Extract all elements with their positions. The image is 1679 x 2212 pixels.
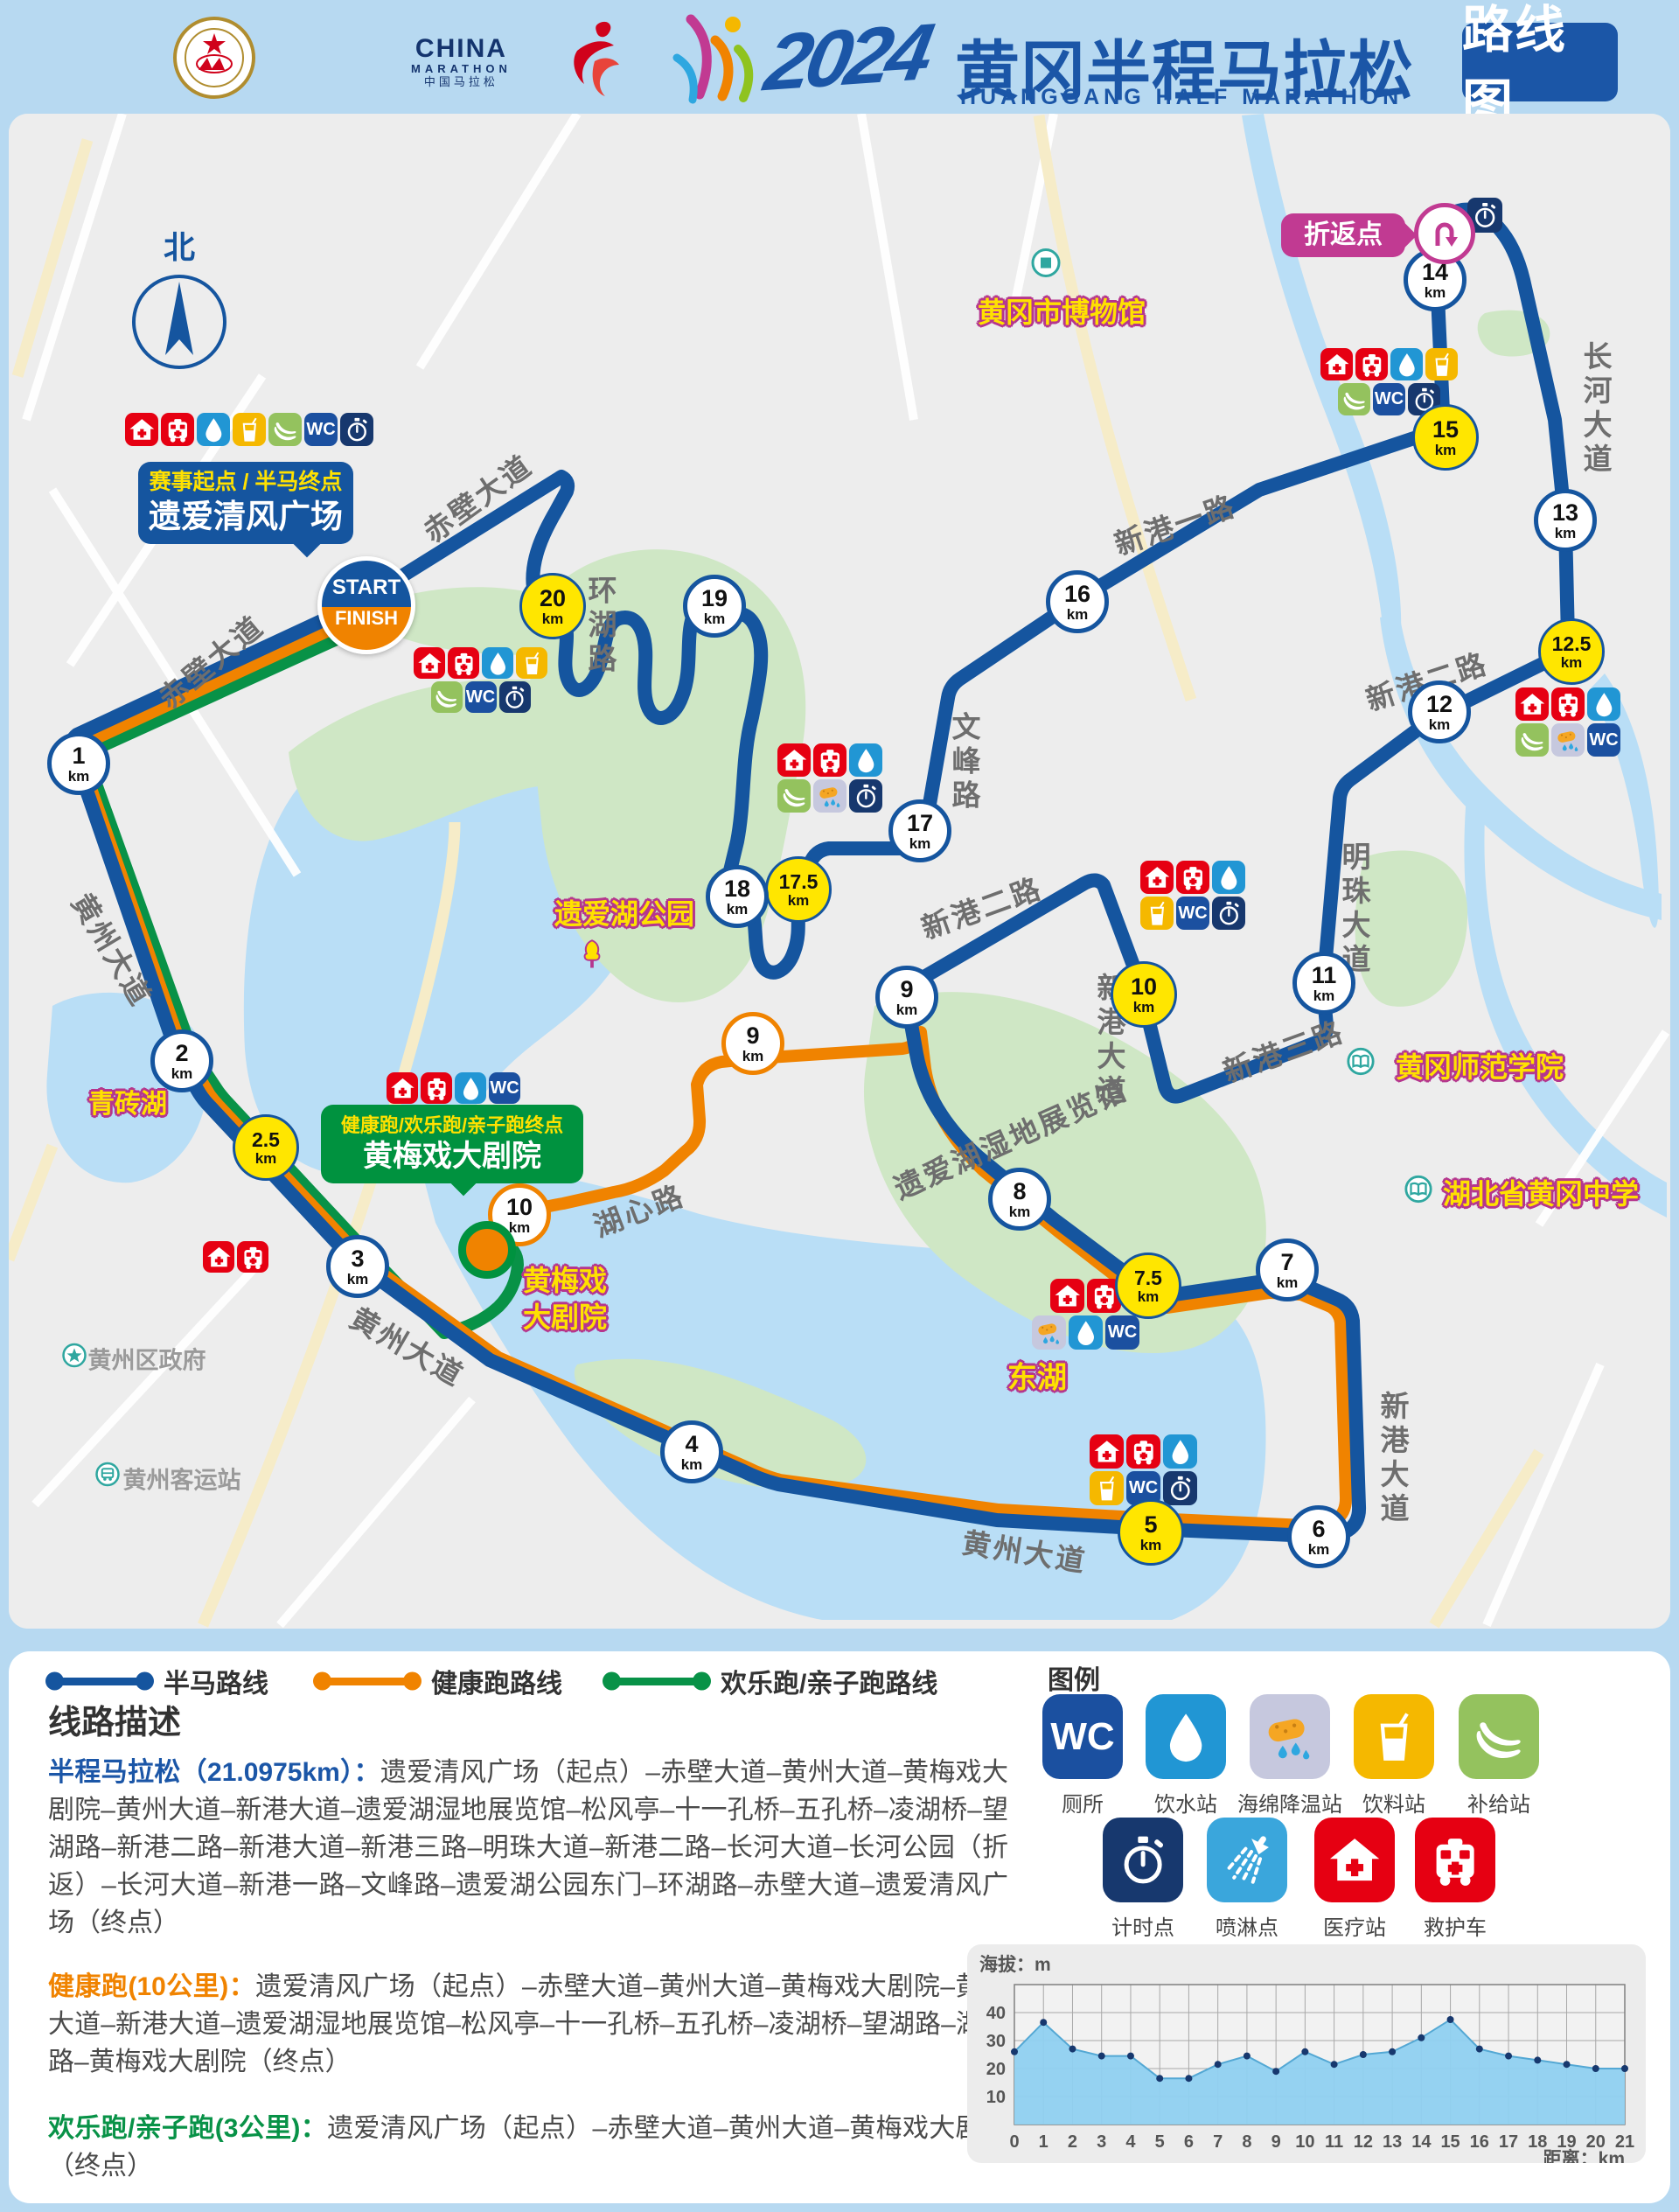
km-marker-number: 10 — [506, 1196, 533, 1219]
water-icon — [1146, 1694, 1226, 1779]
wc-icon: WC — [489, 1072, 520, 1104]
route-line-swatch — [605, 1678, 708, 1685]
svg-text:4: 4 — [1125, 2132, 1136, 2152]
km-marker-unit: km — [788, 893, 810, 908]
medical-icon — [203, 1241, 234, 1273]
km-marker-number: 17.5 — [779, 872, 819, 892]
km-marker-unit: km — [1308, 1542, 1330, 1557]
road-label: 黄州大道 — [959, 1519, 1090, 1580]
km-marker-number: 20 — [540, 587, 566, 611]
banana-icon — [1515, 723, 1549, 757]
km-marker-unit: km — [742, 1049, 764, 1064]
road-label: 赤壁大道 — [148, 604, 271, 716]
km-marker-19: 19km — [683, 575, 746, 638]
start-finish-marker: START FINISH — [317, 556, 415, 654]
km-marker-unit: km — [1277, 1275, 1299, 1290]
ambulance-icon — [813, 743, 846, 777]
km-marker-unit: km — [1435, 443, 1457, 457]
road-label: 文峰路 — [943, 712, 985, 814]
medical-icon — [1050, 1279, 1084, 1313]
sponge-icon — [1032, 1315, 1066, 1350]
timer-icon — [849, 779, 882, 813]
ambulance-icon — [1551, 687, 1585, 721]
route-map: 北 折返点 赛事起点 / 半马终点 遗爱清风 — [9, 114, 1670, 1629]
km-marker-unit: km — [1138, 1289, 1160, 1304]
theater-callout-line1: 健康跑/欢乐跑/亲子跑终点 — [341, 1113, 563, 1138]
landmark-label: 大剧院 — [523, 1295, 607, 1336]
km-marker-9: 9km — [721, 1012, 784, 1075]
drink-icon — [233, 413, 266, 446]
km-marker-number: 3 — [351, 1247, 364, 1271]
service-icon-cluster: WC — [1515, 687, 1620, 757]
landmark-label: 湖北省黄冈中学 — [1443, 1172, 1639, 1212]
km-marker-unit: km — [909, 836, 931, 851]
km-marker-number: 5 — [1144, 1513, 1157, 1537]
banana-icon — [431, 681, 463, 713]
km-marker-unit: km — [255, 1151, 277, 1166]
legend-item-label: 计时点 — [1111, 1910, 1174, 1941]
km-marker-unit: km — [1555, 526, 1577, 541]
svg-text:0: 0 — [1009, 2132, 1019, 2152]
km-marker-unit: km — [681, 1457, 703, 1472]
svg-text:30: 30 — [986, 2032, 1006, 2051]
runner-logo-icon — [560, 16, 630, 111]
water-icon — [1587, 687, 1620, 721]
wc-icon: WC — [1176, 897, 1209, 930]
km-marker-unit: km — [1425, 285, 1446, 300]
ambulance-icon — [161, 413, 194, 446]
road-label: 新港一路 — [1108, 483, 1241, 563]
event-logo-icon — [665, 10, 768, 111]
start-callout-line1: 赛事起点 / 半马终点 — [150, 469, 343, 496]
road-label: 湖心路 — [587, 1172, 690, 1246]
svg-text:10: 10 — [986, 2088, 1006, 2107]
water-icon — [849, 743, 882, 777]
km-marker-4: 4km — [660, 1420, 723, 1483]
service-icon-cluster: WC — [125, 413, 373, 446]
svg-text:13: 13 — [1383, 2132, 1402, 2152]
legend-item: 补给站 — [1425, 1694, 1573, 1818]
km-marker-12: 12km — [1408, 680, 1471, 743]
service-icon-cluster — [777, 743, 882, 813]
route-legend-item: 欢乐跑/亲子跑路线 — [605, 1662, 937, 1700]
landmark-label: 黄梅戏 — [523, 1259, 607, 1299]
km-marker-6: 6km — [1287, 1505, 1350, 1568]
km-marker-number: 13 — [1552, 501, 1578, 525]
km-marker-number: 12 — [1426, 693, 1453, 716]
finish-label: FINISH — [335, 607, 398, 630]
km-marker-18: 18km — [706, 865, 769, 928]
timer-icon — [1103, 1818, 1183, 1902]
medical-icon — [1140, 861, 1174, 894]
medical-icon — [387, 1072, 418, 1104]
drink-icon — [1354, 1694, 1434, 1779]
svg-text:15: 15 — [1440, 2132, 1460, 2152]
route-line-swatch — [48, 1678, 151, 1685]
km-marker-3: 3km — [326, 1235, 389, 1298]
km-marker-20: 20km — [519, 573, 586, 639]
ambulance-icon — [1126, 1434, 1160, 1469]
legend-item-label: 医疗站 — [1323, 1910, 1386, 1941]
km-marker-number: 19 — [701, 587, 728, 611]
km-marker-unit: km — [509, 1220, 531, 1235]
fun-run-finish-dot — [458, 1221, 516, 1279]
half-marathon-description: 半程马拉松（21.0975km）：遗爱清风广场（起点）–赤壁大道–黄州大道–黄梅… — [48, 1754, 1008, 1942]
medical-icon — [125, 413, 158, 446]
km-marker-number: 1 — [72, 744, 85, 768]
road-label: 黄州大道 — [344, 1295, 474, 1395]
km-marker-unit: km — [68, 769, 90, 784]
km-marker-unit: km — [171, 1066, 193, 1081]
km-marker-13: 13km — [1534, 489, 1597, 552]
svg-text:5: 5 — [1155, 2132, 1165, 2152]
turnaround-callout: 折返点 — [1281, 213, 1405, 257]
legend-item-label: 补给站 — [1467, 1787, 1530, 1818]
star-icon — [61, 1343, 87, 1373]
event-title-en: HUANGGANG HALF MARATHON — [960, 85, 1403, 110]
road-label: 新港二路 — [915, 865, 1048, 947]
timer-icon — [499, 681, 531, 713]
road-label: 赤壁大道 — [414, 443, 540, 550]
svg-text:1: 1 — [1039, 2132, 1049, 2152]
landmark-label: 黄冈师范学院 — [1396, 1045, 1564, 1085]
museum-icon — [1030, 248, 1062, 283]
drink-icon — [516, 647, 547, 679]
timer-icon — [1163, 1471, 1197, 1505]
medical-icon — [1320, 348, 1353, 380]
km-marker-number: 7 — [1280, 1251, 1293, 1274]
legend-item-label: 饮水站 — [1154, 1787, 1217, 1818]
km-marker-15: 15km — [1412, 404, 1479, 471]
km-marker-unit: km — [704, 611, 726, 626]
china-marathon-en: CHINA — [411, 35, 512, 63]
km-marker-9: 9km — [875, 966, 938, 1029]
ambulance-icon — [237, 1241, 268, 1273]
water-icon — [455, 1072, 486, 1104]
wc-icon: WC — [465, 681, 497, 713]
km-marker-unit: km — [1067, 607, 1089, 622]
theater-callout-line2: 黄梅戏大剧院 — [363, 1138, 541, 1176]
header: CHINA MARATHON 中国马拉松 2024 黄冈半程马拉松 HUANGG… — [0, 0, 1679, 114]
svg-text:14: 14 — [1411, 2132, 1432, 2152]
km-marker-12.5: 12.5km — [1538, 618, 1605, 685]
legend-title: 图例 — [1048, 1658, 1100, 1697]
svg-text:40: 40 — [986, 2004, 1006, 2023]
compass-north-label: 北 — [164, 222, 195, 268]
svg-text:7: 7 — [1213, 2132, 1223, 2152]
km-marker-number: 12.5 — [1552, 634, 1592, 654]
km-marker-17: 17km — [888, 799, 951, 862]
svg-text:10: 10 — [1295, 2132, 1314, 2152]
km-marker-17.5: 17.5km — [765, 856, 832, 923]
km-marker-unit: km — [1140, 1538, 1162, 1553]
km-marker-number: 2.5 — [252, 1130, 280, 1150]
ambulance-icon — [1176, 861, 1209, 894]
route-legend-label: 欢乐跑/亲子跑路线 — [721, 1662, 937, 1700]
km-marker-2.5: 2.5km — [233, 1114, 299, 1181]
sponge-icon — [1551, 723, 1585, 757]
km-marker-7.5: 7.5km — [1115, 1253, 1181, 1319]
water-icon — [1163, 1434, 1197, 1469]
year-script: 2024 — [758, 7, 935, 109]
drink-icon — [1140, 897, 1174, 930]
service-icon-cluster: WC — [414, 647, 547, 713]
ambulance-icon — [1355, 348, 1388, 380]
km-marker-10: 10km — [1111, 961, 1177, 1028]
ambulance-icon — [1415, 1818, 1495, 1902]
route-line-swatch — [316, 1678, 419, 1685]
svg-text:6: 6 — [1184, 2132, 1194, 2152]
drink-icon — [1425, 348, 1458, 380]
km-marker-number: 2 — [175, 1042, 188, 1065]
water-icon — [1390, 348, 1423, 380]
china-marathon-logo: CHINA MARATHON 中国马拉松 — [411, 35, 512, 88]
theater-callout: 健康跑/欢乐跑/亲子跑终点 黄梅戏大剧院 — [321, 1105, 583, 1183]
svg-text:海拔：m: 海拔：m — [979, 1954, 1051, 1975]
km-marker-number: 8 — [1013, 1180, 1026, 1204]
km-marker-number: 4 — [685, 1433, 698, 1456]
turnaround-label: 折返点 — [1304, 219, 1383, 252]
start-label: START — [332, 576, 401, 600]
china-marathon-sub: MARATHON — [411, 63, 512, 75]
wc-icon: WC — [1105, 1315, 1139, 1350]
km-marker-unit: km — [1133, 1000, 1155, 1015]
route-legend-item: 健康跑路线 — [316, 1662, 562, 1700]
svg-text:8: 8 — [1242, 2132, 1251, 2152]
busstop-icon — [94, 1462, 121, 1492]
sponge-icon — [1250, 1694, 1330, 1779]
road-label: 新港三路 — [1216, 1008, 1349, 1091]
route-legend-label: 健康跑路线 — [431, 1662, 562, 1700]
banana-icon — [268, 413, 302, 446]
landmark-label: 东湖 — [1007, 1354, 1067, 1397]
description-title: 线路描述 — [48, 1695, 181, 1743]
km-marker-unit: km — [1561, 655, 1583, 670]
svg-text:11: 11 — [1325, 2132, 1343, 2152]
svg-text:2: 2 — [1068, 2132, 1077, 2152]
sponge-icon — [813, 779, 846, 813]
compass-icon — [129, 271, 230, 377]
km-marker-8: 8km — [988, 1168, 1051, 1231]
km-marker-number: 9 — [900, 978, 913, 1001]
km-marker-16: 16km — [1046, 570, 1109, 633]
km-marker-unit: km — [896, 1002, 918, 1017]
medical-icon — [414, 647, 445, 679]
km-marker-number: 16 — [1064, 583, 1090, 606]
km-marker-unit: km — [727, 902, 749, 917]
service-icon-cluster: WC — [1090, 1434, 1197, 1505]
banana-icon — [1459, 1694, 1539, 1779]
medical-icon — [1515, 687, 1549, 721]
landmark-label: 黄州客运站 — [123, 1462, 241, 1496]
landmark-label: 黄冈市博物馆 — [978, 290, 1146, 331]
banana-icon — [777, 779, 811, 813]
km-marker-unit: km — [347, 1272, 369, 1287]
km-marker-unit: km — [1009, 1204, 1031, 1219]
elevation-chart: 1020304001234567891011121314151617181920… — [967, 1944, 1646, 2163]
ambulance-icon — [421, 1072, 452, 1104]
road-label: 环湖路 — [579, 576, 621, 678]
km-marker-11: 11km — [1292, 952, 1355, 1015]
legend-item-label: 厕所 — [1062, 1787, 1104, 1818]
china-marathon-cn: 中国马拉松 — [411, 76, 512, 88]
svg-text:距离：km: 距离：km — [1543, 2148, 1625, 2163]
start-callout: 赛事起点 / 半马终点 遗爱清风广场 — [138, 462, 353, 544]
water-icon — [1069, 1315, 1103, 1350]
km-marker-number: 15 — [1432, 418, 1459, 442]
wc-icon: WC — [304, 413, 338, 446]
km-marker-unit: km — [1313, 988, 1335, 1003]
drink-icon — [1090, 1471, 1124, 1505]
timer-icon — [340, 413, 373, 446]
km-marker-number: 7.5 — [1134, 1268, 1162, 1288]
book-icon — [1346, 1047, 1376, 1081]
km-marker-unit: km — [542, 611, 564, 626]
km-marker-7: 7km — [1256, 1239, 1319, 1301]
medical-icon — [777, 743, 811, 777]
water-icon — [197, 413, 230, 446]
landmark-label: 黄州区政府 — [88, 1342, 206, 1376]
road-label: 长河大道 — [1574, 341, 1616, 478]
legend-item-label: 饮料站 — [1362, 1787, 1425, 1818]
start-callout-line2: 遗爱清风广场 — [149, 497, 343, 537]
service-icon-cluster: WC — [387, 1072, 520, 1104]
legend-item-label: 救护车 — [1424, 1910, 1487, 1941]
landmark-label: 遗爱湖公园 — [554, 892, 694, 932]
road-label: 黄州大道 — [63, 884, 164, 1014]
service-icon-cluster — [203, 1241, 268, 1273]
poster: CHINA MARATHON 中国马拉松 2024 黄冈半程马拉松 HUANGG… — [0, 0, 1679, 2212]
landmark-label: 青砖湖 — [88, 1082, 167, 1120]
km-marker-number: 10 — [1131, 975, 1157, 999]
ambulance-icon — [448, 647, 479, 679]
tree-icon — [579, 939, 605, 976]
u-turn-icon — [1414, 203, 1475, 264]
svg-text:17: 17 — [1499, 2132, 1518, 2152]
legend-item: 救护车 — [1381, 1818, 1529, 1941]
athletics-association-logo — [172, 16, 256, 100]
health-run-description-lead: 健康跑(10公里)： — [48, 1972, 255, 2001]
svg-text:9: 9 — [1271, 2132, 1281, 2152]
km-marker-2: 2km — [150, 1029, 213, 1092]
route-map-badge: 路线图 — [1462, 23, 1618, 101]
water-icon — [482, 647, 513, 679]
wc-icon: WC — [1373, 383, 1405, 415]
legend-item-label: 喷淋点 — [1216, 1910, 1278, 1941]
banana-icon — [1338, 383, 1370, 415]
km-marker-5: 5km — [1118, 1499, 1184, 1566]
half-marathon-description-lead: 半程马拉松（21.0975km）： — [48, 1758, 380, 1787]
km-marker-1: 1km — [47, 732, 110, 795]
svg-text:3: 3 — [1097, 2132, 1106, 2152]
water-icon — [1212, 861, 1245, 894]
info-panel: 半马路线健康跑路线欢乐跑/亲子跑路线 线路描述 半程马拉松（21.0975km）… — [9, 1651, 1670, 2203]
svg-text:16: 16 — [1470, 2132, 1489, 2152]
km-marker-number: 18 — [724, 877, 750, 901]
service-icon-cluster: WC — [1140, 861, 1245, 930]
road-label: 新港大道 — [1371, 1391, 1413, 1527]
shower-icon — [1207, 1818, 1287, 1902]
km-marker-unit: km — [1429, 717, 1451, 732]
timer-icon — [1212, 897, 1245, 930]
km-marker-number: 17 — [907, 812, 933, 835]
fun-run-description-lead: 欢乐跑/亲子跑(3公里)： — [48, 2114, 327, 2143]
fun-run-description: 欢乐跑/亲子跑(3公里)：遗爱清风广场（起点）–赤壁大道–黄州大道–黄梅戏大剧院… — [48, 2110, 1008, 2185]
km-marker-number: 11 — [1312, 964, 1337, 987]
km-marker-number: 9 — [746, 1024, 759, 1048]
book-icon — [1404, 1175, 1433, 1209]
svg-text:12: 12 — [1354, 2132, 1373, 2152]
health-run-description: 健康跑(10公里)：遗爱清风广场（起点）–赤壁大道–黄州大道–黄梅戏大剧院–黄州… — [48, 1968, 1008, 2081]
km-marker-number: 6 — [1312, 1518, 1325, 1541]
svg-text:20: 20 — [986, 2060, 1006, 2079]
medical-icon — [1090, 1434, 1124, 1469]
wc-icon: WC — [1587, 723, 1620, 757]
map-overlays: 北 折返点 赛事起点 / 半马终点 遗爱清风 — [9, 114, 1670, 1629]
